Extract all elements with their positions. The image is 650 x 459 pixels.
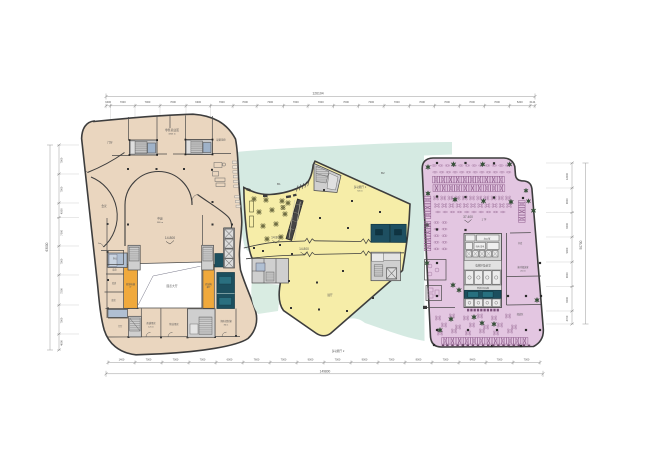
- svg-text:4000: 4000: [60, 340, 64, 346]
- svg-text:14.800: 14.800: [165, 236, 175, 240]
- svg-text:6000: 6000: [227, 357, 233, 361]
- svg-text:14.800: 14.800: [271, 236, 281, 240]
- svg-text:7000: 7000: [60, 229, 64, 235]
- svg-text:7000: 7000: [281, 357, 287, 361]
- svg-text:6300: 6300: [195, 100, 201, 104]
- svg-text:9000: 9000: [565, 198, 569, 204]
- svg-text:7500: 7500: [60, 288, 64, 294]
- svg-text:多功能厅 1: 多功能厅 1: [354, 185, 367, 189]
- svg-text:7000: 7000: [394, 100, 400, 104]
- svg-text:7000: 7000: [318, 100, 324, 104]
- svg-text:展厅: 展厅: [327, 293, 333, 297]
- svg-text:210 m: 210 m: [520, 270, 526, 272]
- svg-text:9000: 9000: [308, 357, 314, 361]
- svg-text:7000: 7000: [120, 100, 126, 104]
- svg-text:7000: 7000: [524, 357, 530, 361]
- svg-text:4700: 4700: [565, 315, 569, 321]
- svg-text:7000: 7000: [443, 357, 449, 361]
- svg-text:B1: B1: [277, 182, 281, 186]
- svg-text:7000: 7000: [60, 186, 64, 192]
- svg-text:B2: B2: [381, 171, 385, 175]
- svg-text:7000: 7000: [200, 357, 206, 361]
- svg-text:7000: 7000: [335, 357, 341, 361]
- svg-text:7000: 7000: [146, 357, 152, 361]
- svg-text:9000: 9000: [362, 357, 368, 361]
- svg-text:580 m: 580 m: [157, 222, 163, 224]
- svg-text:9000: 9000: [565, 296, 569, 302]
- svg-text:7000: 7000: [145, 100, 151, 104]
- svg-text:9400: 9400: [470, 357, 476, 361]
- svg-text:1865 m: 1865 m: [168, 133, 175, 135]
- svg-text:7000: 7000: [343, 100, 349, 104]
- svg-text:7000: 7000: [60, 258, 64, 264]
- svg-text:多功能厅 2: 多功能厅 2: [332, 349, 345, 353]
- svg-text:会议: 会议: [101, 204, 107, 208]
- svg-text:126104: 126104: [312, 92, 323, 96]
- svg-text:12000: 12000: [565, 172, 569, 180]
- svg-text:37.400: 37.400: [463, 215, 473, 219]
- svg-text:7600: 7600: [254, 357, 260, 361]
- svg-text:5200: 5200: [517, 100, 523, 104]
- svg-text:1 7F: 1 7F: [482, 219, 487, 222]
- svg-text:9000: 9000: [565, 272, 569, 278]
- svg-text:920 m: 920 m: [357, 190, 363, 192]
- svg-text:7000: 7000: [60, 317, 64, 323]
- svg-text:9000: 9000: [565, 247, 569, 253]
- svg-text:7000: 7000: [173, 357, 179, 361]
- svg-text:展览大厅: 展览大厅: [166, 284, 177, 288]
- svg-text:1400: 1400: [119, 357, 125, 361]
- svg-text:7000: 7000: [497, 357, 503, 361]
- svg-text:7000: 7000: [389, 357, 395, 361]
- svg-text:门厅: 门厅: [107, 141, 113, 145]
- svg-text:电梯厅及前室: 电梯厅及前室: [475, 264, 491, 268]
- svg-text:7000: 7000: [242, 100, 248, 104]
- svg-text:设备用房: 设备用房: [216, 138, 226, 142]
- svg-text:7000: 7000: [419, 100, 425, 104]
- svg-text:7000: 7000: [267, 100, 273, 104]
- svg-text:7600: 7600: [219, 100, 225, 104]
- svg-text:149800: 149800: [320, 369, 331, 373]
- svg-text:4500: 4500: [60, 208, 64, 214]
- svg-text:7000: 7000: [60, 157, 64, 163]
- svg-text:9000: 9000: [565, 222, 569, 228]
- svg-text:零售商业区: 零售商业区: [165, 128, 179, 132]
- svg-text:7000: 7000: [170, 100, 176, 104]
- svg-text:125 m: 125 m: [148, 326, 154, 328]
- svg-text:6400: 6400: [105, 100, 111, 104]
- svg-text:8000: 8000: [416, 357, 422, 361]
- svg-text:7000: 7000: [293, 100, 299, 104]
- svg-text:7000: 7000: [368, 100, 374, 104]
- svg-text:7000: 7000: [469, 100, 475, 104]
- svg-text:7000: 7000: [444, 100, 450, 104]
- svg-text:86 m: 86 m: [224, 324, 229, 326]
- svg-text:63000: 63000: [45, 242, 49, 251]
- svg-text:50700: 50700: [579, 240, 583, 249]
- svg-text:14.800: 14.800: [299, 247, 309, 251]
- svg-text:7000: 7000: [494, 100, 500, 104]
- svg-text:6144: 6144: [530, 100, 536, 104]
- svg-text:中庭: 中庭: [157, 217, 163, 221]
